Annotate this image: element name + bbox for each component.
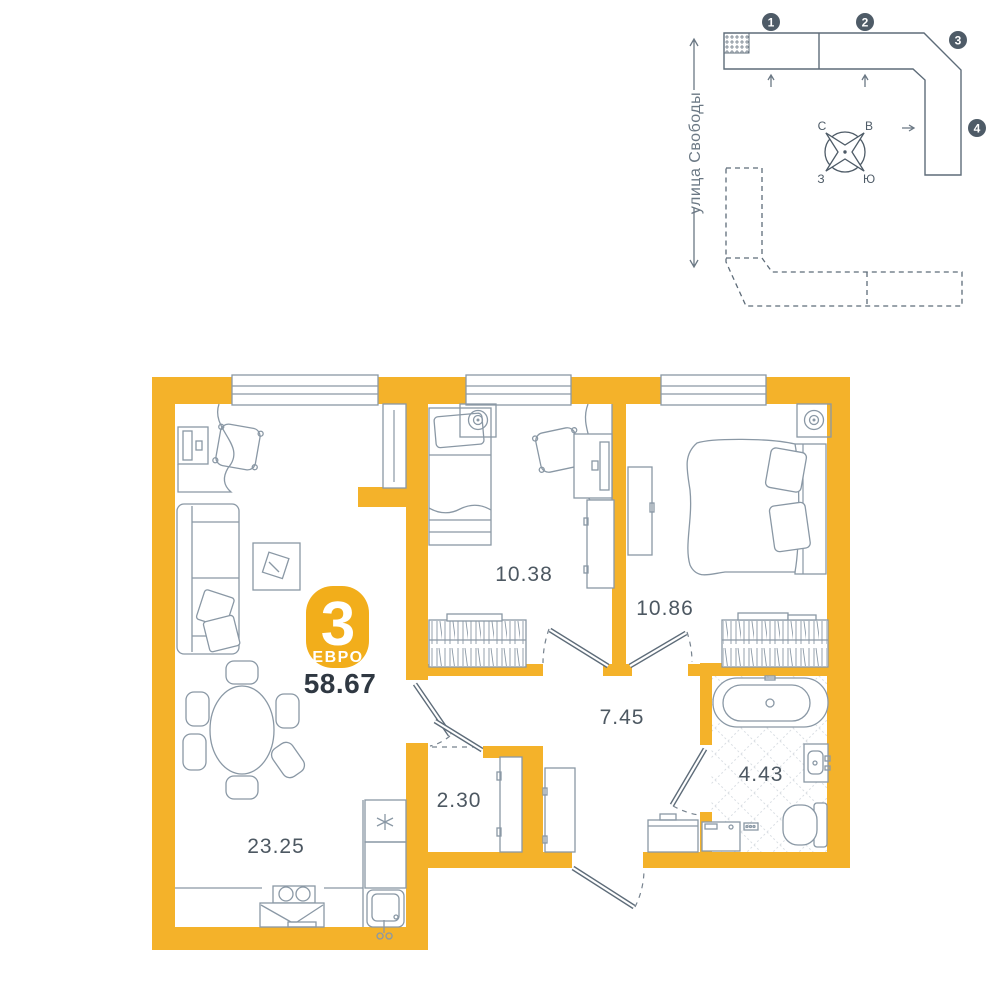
compass-rose: С В З Ю	[817, 119, 875, 186]
desk-chair	[212, 422, 264, 471]
kitchen-counter	[175, 800, 406, 939]
compass-east: В	[865, 119, 873, 133]
area-label-bedroom-master: 10.86	[636, 597, 694, 620]
dining-table	[183, 661, 308, 799]
door-living	[415, 684, 450, 746]
floorplan-canvas: улица Свободы 1 2	[0, 0, 1000, 1000]
street-arrow-up-icon	[690, 39, 698, 90]
desk-knob	[196, 441, 202, 450]
fridge-snowflake-icon	[377, 814, 393, 830]
dining-chair	[276, 694, 299, 728]
svg-text:4: 4	[974, 122, 981, 136]
door-entrance	[573, 868, 644, 907]
svg-text:1: 1	[768, 16, 775, 30]
building-marker-4: 4	[968, 119, 986, 137]
room-hallway: 7.45	[543, 706, 698, 852]
monitor	[183, 431, 192, 460]
door-bedroom-small	[543, 629, 608, 666]
dining-chair	[186, 692, 209, 726]
room-storage: 2.30	[437, 757, 522, 852]
compass-west: З	[817, 172, 824, 186]
window-bedroom-master	[661, 375, 766, 405]
side-table	[253, 543, 300, 590]
dining-chair	[183, 734, 206, 770]
workzone-rug-edge	[178, 404, 234, 492]
door-bedroom-master	[630, 632, 692, 666]
dresser-master	[628, 467, 654, 555]
area-label-hallway: 7.45	[600, 706, 645, 729]
site-building-adjacent	[726, 168, 962, 306]
door-bathroom	[672, 749, 705, 815]
sofa	[177, 504, 240, 654]
door-storage	[432, 721, 482, 750]
badge-type-label: ЕВРО	[312, 649, 363, 666]
entrance-arrow-1-icon	[768, 75, 774, 87]
site-plan: улица Свободы 1 2	[687, 13, 986, 306]
apartment-badge: 3 ЕВРО	[306, 586, 369, 668]
room-bedroom-master: 10.86	[628, 404, 831, 667]
compass-north: С	[818, 119, 827, 133]
desk-2	[574, 434, 612, 498]
svg-text:3: 3	[955, 34, 962, 48]
compass-south: Ю	[863, 172, 875, 186]
shoe-bench	[648, 814, 698, 852]
area-label-storage: 2.30	[437, 789, 482, 812]
double-bed	[687, 439, 826, 575]
ceiling-light-2	[797, 404, 831, 437]
total-area-label: 58.67	[304, 668, 377, 699]
building-markers: 1 2 3 4	[762, 13, 986, 137]
apartment-plan: 23.25	[152, 375, 850, 950]
window-bedroom-small	[466, 375, 571, 405]
entrance-arrow-2-icon	[862, 75, 868, 87]
kitchen-cabinet	[365, 842, 406, 888]
room-bedroom-small: 10.38	[429, 404, 614, 667]
sofa-pillow-2	[203, 615, 241, 653]
building-marker-3: 3	[949, 31, 967, 49]
bed-pillow-2	[769, 502, 811, 553]
storage-cabinet	[497, 757, 522, 852]
street-arrow-down-icon	[690, 208, 698, 267]
bathroom-sink	[804, 744, 830, 782]
wardrobe-small-bedroom	[429, 614, 526, 667]
dining-chair	[268, 739, 307, 781]
apartment-location-marker	[724, 33, 749, 53]
windows	[232, 375, 766, 405]
building-marker-2: 2	[856, 13, 874, 31]
bed-pillow-1	[765, 447, 807, 493]
dresser-2	[584, 500, 614, 588]
area-label-bedroom-small: 10.38	[495, 563, 553, 586]
stove	[260, 886, 324, 927]
window-living	[232, 375, 378, 405]
wardrobe-master-bedroom	[722, 613, 828, 667]
svg-text:2: 2	[862, 16, 869, 30]
area-label-living: 23.25	[247, 835, 305, 858]
toilet	[783, 803, 827, 847]
entrance-arrow-4-icon	[902, 125, 914, 131]
street-label: улица Свободы	[687, 92, 704, 214]
street-indicator: улица Свободы	[687, 39, 704, 267]
building-marker-1: 1	[762, 13, 780, 31]
hallway-cabinet	[543, 768, 575, 852]
adjacent-building-outline	[726, 168, 962, 306]
dining-chair	[226, 776, 258, 799]
area-label-bathroom: 4.43	[739, 763, 784, 786]
dining-chair	[226, 661, 258, 684]
bathtub	[713, 676, 828, 727]
